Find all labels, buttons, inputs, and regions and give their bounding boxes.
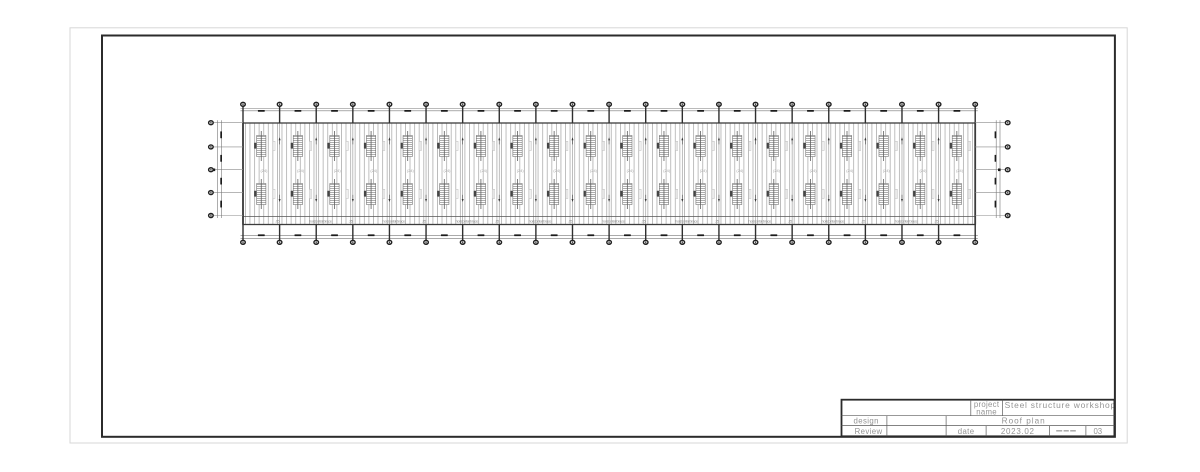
- svg-text:(24): (24): [444, 168, 452, 173]
- svg-text:horizontal brace: horizontal brace: [309, 219, 333, 224]
- svg-text:(24): (24): [883, 168, 891, 173]
- svg-text:(24): (24): [370, 168, 378, 173]
- svg-text:Review: Review: [855, 427, 883, 436]
- svg-text:horizontal brace: horizontal brace: [748, 219, 772, 224]
- svg-text:(24): (24): [736, 168, 744, 173]
- svg-text:horizontal brace: horizontal brace: [529, 219, 553, 224]
- svg-text:(24): (24): [590, 168, 598, 173]
- svg-text:horizontal brace: horizontal brace: [895, 219, 919, 224]
- svg-text:horizontal brace: horizontal brace: [455, 219, 479, 224]
- svg-text:(24): (24): [773, 168, 781, 173]
- svg-text:(24): (24): [663, 168, 671, 173]
- svg-text:design: design: [854, 416, 879, 425]
- svg-text:date: date: [958, 427, 975, 436]
- svg-text:(24): (24): [297, 168, 305, 173]
- svg-text:(24): (24): [846, 168, 854, 173]
- svg-text:(24): (24): [407, 168, 415, 173]
- svg-text:03: 03: [1093, 427, 1102, 436]
- svg-text:horizontal brace: horizontal brace: [602, 219, 626, 224]
- svg-text:(24): (24): [919, 168, 927, 173]
- svg-text:(24): (24): [553, 168, 561, 173]
- svg-text:(24): (24): [261, 168, 269, 173]
- svg-text:horizontal brace: horizontal brace: [675, 219, 699, 224]
- svg-text:name: name: [976, 407, 997, 416]
- svg-text:horizontal brace: horizontal brace: [822, 219, 846, 224]
- svg-text:(24): (24): [956, 168, 964, 173]
- svg-text:(24): (24): [334, 168, 342, 173]
- svg-text:(24): (24): [810, 168, 818, 173]
- svg-text:2023.02: 2023.02: [1001, 427, 1035, 436]
- svg-text:Roof plan: Roof plan: [1002, 417, 1046, 426]
- svg-text:(24): (24): [700, 168, 708, 173]
- svg-text:(24): (24): [627, 168, 635, 173]
- svg-text:horizontal brace: horizontal brace: [382, 219, 406, 224]
- svg-text:Steel structure workshop: Steel structure workshop: [1005, 400, 1116, 410]
- svg-text:(24): (24): [480, 168, 488, 173]
- svg-text:(24): (24): [517, 168, 525, 173]
